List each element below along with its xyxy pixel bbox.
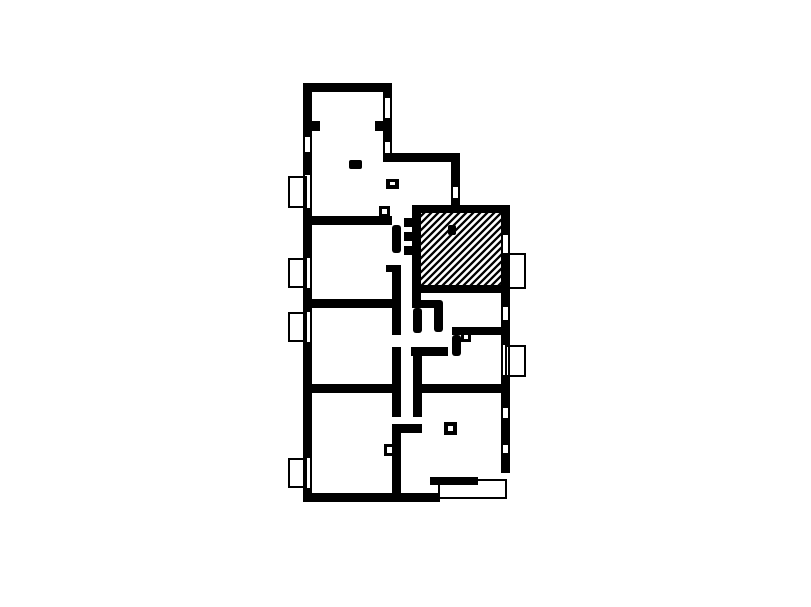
hollow-square-symbol-center <box>382 209 387 214</box>
wall-segment <box>312 299 392 308</box>
wall-segment <box>501 213 510 235</box>
solid-mark <box>349 160 362 169</box>
window-line <box>310 458 312 488</box>
window-line <box>303 175 305 208</box>
wall-segment <box>413 347 422 417</box>
wall-segment <box>404 218 412 227</box>
wall-segment <box>303 152 312 175</box>
wall-segment <box>303 342 312 458</box>
wall-segment <box>312 216 392 225</box>
solid-mark <box>448 225 456 235</box>
window-line <box>310 175 312 208</box>
wall-stub <box>392 225 401 253</box>
hollow-square-symbol-center <box>464 335 468 339</box>
wall-segment <box>451 198 460 205</box>
window-line <box>501 345 503 375</box>
wall-segment <box>303 208 312 258</box>
floor-plan-drawing <box>0 0 811 607</box>
wall-segment <box>412 285 501 293</box>
window-line <box>458 187 460 198</box>
wall-segment <box>451 162 460 187</box>
wall-segment <box>392 265 401 335</box>
wall-segment <box>412 205 510 213</box>
wall-segment <box>375 121 383 131</box>
wall-segment <box>383 118 392 142</box>
window-line <box>390 98 392 118</box>
wall-stub <box>434 300 443 332</box>
wall-stub <box>452 335 461 356</box>
window-line <box>303 258 305 288</box>
hollow-square-symbol-center <box>387 447 392 453</box>
window-line <box>501 445 503 453</box>
window-line <box>451 187 453 198</box>
hatched-room <box>421 213 501 285</box>
wall-segment <box>392 424 422 433</box>
hollow-square-symbol-center <box>448 426 453 431</box>
page-background <box>0 0 811 607</box>
window-line <box>303 137 305 152</box>
window-line <box>508 408 510 418</box>
window-line <box>310 137 312 152</box>
window-line <box>390 142 392 153</box>
wall-segment <box>303 83 392 92</box>
window-line <box>383 142 385 153</box>
wall-segment <box>312 121 320 131</box>
floor-plan-canvas <box>0 0 811 607</box>
wall-segment <box>383 92 392 98</box>
wall-segment <box>303 92 312 137</box>
wall-segment <box>412 213 421 308</box>
window-line <box>310 312 312 342</box>
wall-segment <box>392 347 401 417</box>
wall-segment <box>303 288 312 312</box>
wall-segment <box>422 384 501 393</box>
window-line <box>508 235 510 253</box>
window-line <box>310 258 312 288</box>
hollow-square-symbol-center <box>390 182 395 185</box>
wall-segment <box>312 384 392 393</box>
wall-segment <box>303 493 440 502</box>
window-line <box>508 307 510 320</box>
wall-segment <box>383 153 460 162</box>
window-line <box>508 445 510 453</box>
wall-segment <box>404 232 412 241</box>
wall-segment <box>386 265 392 272</box>
window-line <box>383 98 385 118</box>
wall-segment <box>501 375 510 408</box>
hatched-room-fill <box>421 213 501 285</box>
wall-stub <box>413 308 422 333</box>
window-line <box>508 345 510 375</box>
window-line <box>303 312 305 342</box>
wall-segment <box>452 327 510 335</box>
wall-segment <box>501 418 510 445</box>
wall-segment <box>392 433 401 502</box>
wall-segment <box>501 453 510 473</box>
window-line <box>501 235 503 253</box>
window-line <box>501 408 503 418</box>
window-line <box>501 307 503 320</box>
window-line <box>303 458 305 488</box>
wall-segment <box>404 246 412 255</box>
